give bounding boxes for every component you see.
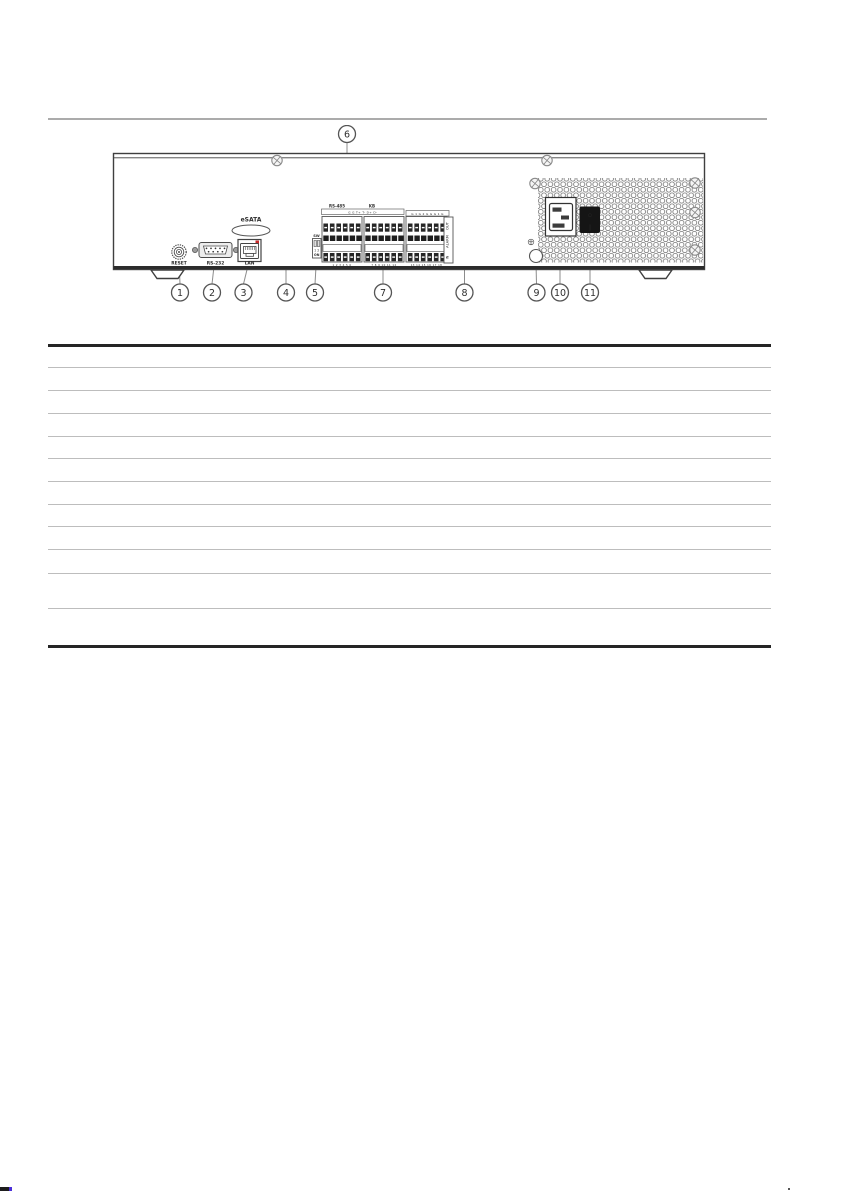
svg-text:4: 4 — [283, 288, 289, 299]
serial-pin-labels: G G T+ T- D+ D- — [348, 210, 377, 214]
screw-icon — [272, 155, 282, 165]
table-row — [48, 608, 771, 645]
svg-text:8: 8 — [461, 288, 467, 299]
page-edge-artifact — [0, 1187, 9, 1191]
power-inlet — [546, 198, 577, 237]
alarm-out-label: OUT — [446, 221, 450, 229]
table-row — [48, 347, 771, 367]
table-row — [48, 390, 771, 413]
power-off-symbol: ○ — [588, 214, 592, 219]
callout-4: 4 — [278, 284, 295, 301]
screw-icon — [542, 155, 552, 165]
svg-text:7: 7 — [380, 288, 386, 299]
callout-9: 9 — [528, 284, 545, 301]
svg-text:10: 10 — [554, 288, 566, 299]
svg-text:1: 1 — [177, 288, 183, 299]
power-switch: ○ | — [580, 207, 601, 234]
alarm-in-label: IN — [446, 255, 450, 259]
reset-button: RESET — [171, 245, 187, 267]
table-row — [48, 436, 771, 458]
rear-panel-figure: RESET RS-232 LAN eSATA — [100, 125, 720, 310]
callout-3: 3 — [235, 284, 252, 301]
table-row — [48, 413, 771, 436]
terminal-block: RS-485 KB G G T+ T- D+ D- G 1 G 2 G G G … — [322, 204, 454, 268]
table-row — [48, 481, 771, 504]
rs232-label: RS-232 — [207, 261, 225, 267]
lan-label: LAN — [245, 261, 255, 267]
rs485-label: RS-485 — [329, 204, 345, 209]
sw-label: SW — [313, 234, 320, 238]
terminal-numbers-3: 13 14 15 16 17 18 — [411, 263, 443, 267]
svg-text:3: 3 — [240, 288, 246, 299]
screw-icon — [530, 178, 540, 188]
table-row — [48, 549, 771, 573]
sw-on-label: ON — [314, 253, 320, 257]
kb-label: KB — [369, 204, 375, 209]
callout-2: 2 — [204, 284, 221, 301]
alarm-pin-labels: G 1 G 2 G G G 1 G — [411, 212, 444, 216]
page-edge-artifact-blue — [9, 1187, 12, 1191]
spec-table — [48, 344, 771, 648]
screw-icon — [690, 207, 700, 217]
power-on-symbol: | — [589, 225, 591, 232]
ground-icon — [528, 239, 534, 245]
sw-positions-label: 1 2 — [314, 249, 319, 253]
callout-11: 11 — [582, 284, 599, 301]
terminal-mid-strips — [323, 245, 446, 252]
callout-8: 8 — [456, 284, 473, 301]
alarm-io-bracket: OUT ALARM IN — [444, 217, 453, 263]
chassis-feet — [151, 270, 672, 279]
page-edge-artifact-dot — [788, 1188, 790, 1190]
screw-icon — [690, 178, 700, 188]
callout-10: 10 — [552, 284, 569, 301]
terminal-numbers-1: 1 2 3 4 5 6 — [333, 263, 352, 267]
callout-5: 5 — [307, 284, 324, 301]
esata-label: eSATA — [241, 217, 262, 224]
reset-label: RESET — [171, 261, 187, 267]
screw-icon — [690, 245, 700, 255]
svg-text:2: 2 — [209, 288, 215, 299]
callout-1: 1 — [172, 284, 189, 301]
callout-6: 6 — [339, 126, 356, 143]
table-row — [48, 573, 771, 608]
svg-text:6: 6 — [344, 129, 350, 140]
alarm-label: ALARM — [446, 235, 450, 248]
table-row — [48, 367, 771, 390]
callout-7: 7 — [375, 284, 392, 301]
svg-text:11: 11 — [584, 288, 596, 299]
terminal-numbers-2: 7 8 9 10 11 12 — [371, 263, 396, 267]
table-row — [48, 458, 771, 481]
svg-text:5: 5 — [312, 288, 318, 299]
svg-text:9: 9 — [533, 288, 539, 299]
table-row — [48, 526, 771, 549]
table-row — [48, 504, 771, 526]
page-top-rule — [48, 118, 767, 120]
dip-switch: SW 1 2 ON — [313, 234, 322, 258]
